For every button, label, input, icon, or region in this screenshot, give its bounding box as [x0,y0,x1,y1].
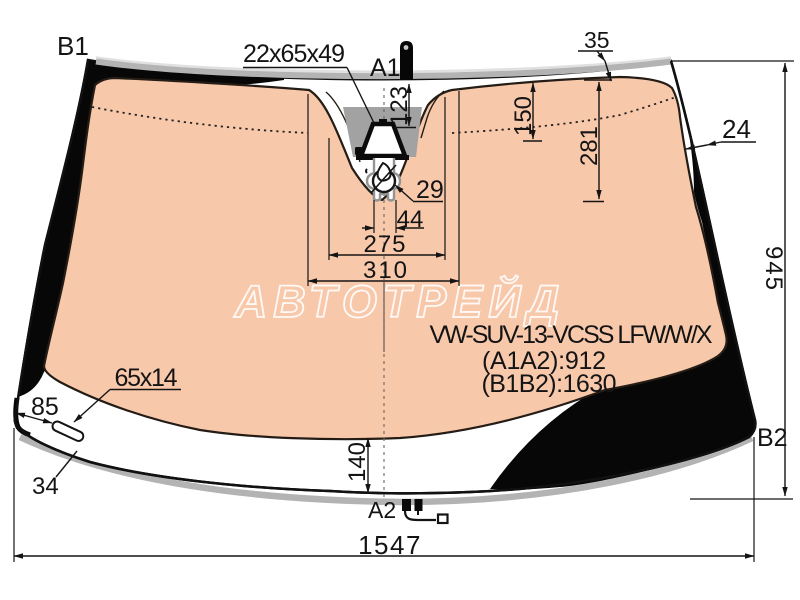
svg-text:65x14: 65x14 [115,364,178,392]
svg-text:150: 150 [510,96,537,136]
svg-text:310: 310 [363,257,409,284]
svg-text:24: 24 [722,114,751,144]
svg-text:85: 85 [31,393,59,421]
svg-text:281: 281 [576,126,603,166]
svg-text:B2: B2 [757,424,788,452]
svg-text:945: 945 [760,246,787,292]
svg-text:44: 44 [397,206,424,233]
svg-text:1547: 1547 [358,530,422,560]
svg-text:35: 35 [584,27,610,53]
svg-text:29: 29 [416,176,444,204]
svg-text:34: 34 [32,473,59,500]
svg-text:A1: A1 [370,54,401,82]
svg-text:123: 123 [386,86,413,126]
svg-text:22x65x49: 22x65x49 [243,40,345,68]
svg-text:275: 275 [363,231,406,258]
svg-text:VW-SUV-13-VCSS LFW/W/X: VW-SUV-13-VCSS LFW/W/X [430,321,713,349]
svg-text:A2: A2 [368,497,396,523]
svg-text:140: 140 [344,442,371,482]
svg-text:B1: B1 [57,31,89,61]
svg-text:(B1B2):1630: (B1B2):1630 [482,370,617,398]
